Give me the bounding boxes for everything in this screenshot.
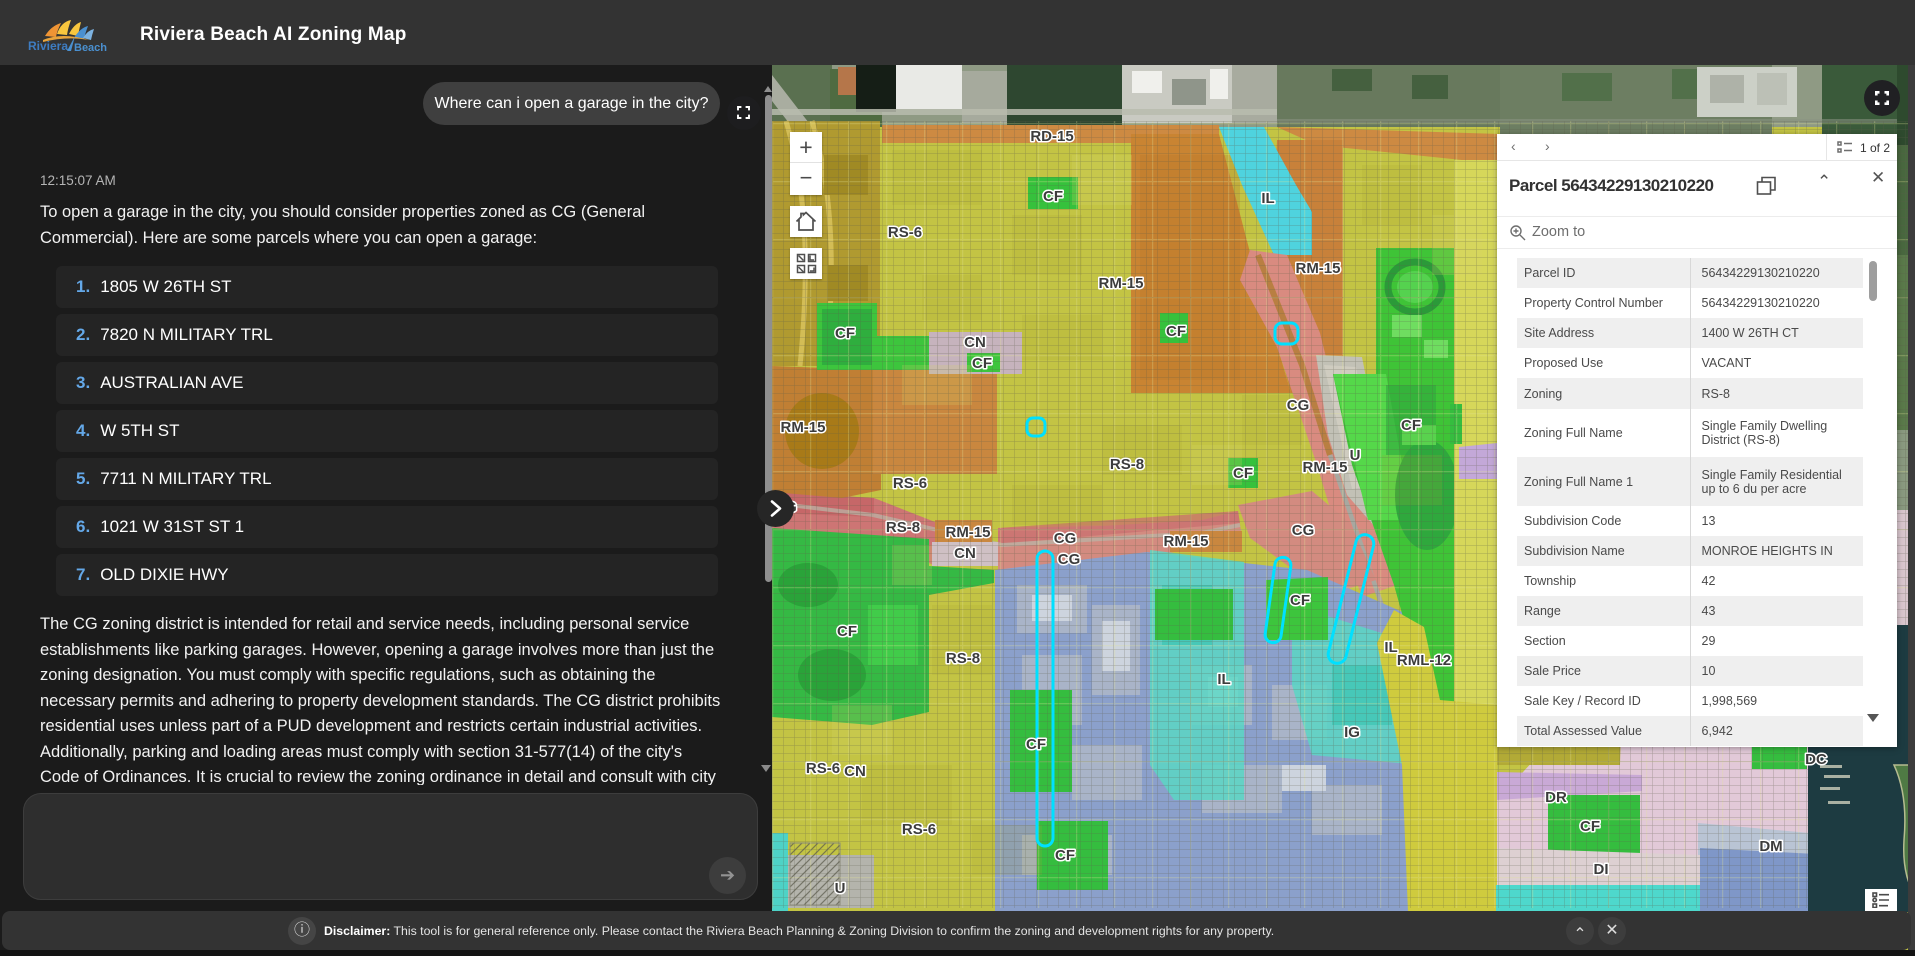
- svg-text:RS-6: RS-6: [902, 821, 936, 838]
- svg-text:CN: CN: [844, 763, 866, 780]
- svg-text:CF: CF: [1580, 818, 1600, 835]
- svg-text:RM-15: RM-15: [1098, 275, 1143, 292]
- svg-text:CF: CF: [1290, 592, 1310, 609]
- svg-text:RM-15: RM-15: [1302, 459, 1347, 476]
- svg-text:CF: CF: [972, 355, 992, 372]
- svg-text:CG: CG: [1054, 530, 1077, 547]
- svg-text:DR: DR: [1545, 789, 1567, 806]
- svg-text:RS-8: RS-8: [1110, 456, 1144, 473]
- svg-text:U: U: [835, 880, 846, 897]
- svg-text:RM-15: RM-15: [1295, 260, 1340, 277]
- svg-text:CN: CN: [954, 545, 976, 562]
- svg-text:DM: DM: [1759, 838, 1782, 855]
- svg-text:RM-15: RM-15: [945, 524, 990, 541]
- svg-text:RS-8: RS-8: [886, 519, 920, 536]
- svg-text:CF: CF: [835, 325, 855, 342]
- svg-text:CG: CG: [1058, 551, 1081, 568]
- svg-text:RS-6: RS-6: [806, 760, 840, 777]
- svg-text:RS-6: RS-6: [893, 475, 927, 492]
- svg-text:RD-15: RD-15: [1030, 128, 1073, 145]
- svg-text:DC: DC: [1805, 751, 1827, 768]
- svg-text:CF: CF: [1233, 465, 1253, 482]
- svg-text:RML-12: RML-12: [1397, 652, 1451, 669]
- svg-text:CG: CG: [1287, 397, 1310, 414]
- svg-text:RS-6: RS-6: [888, 224, 922, 241]
- svg-text:CG: CG: [1292, 522, 1315, 539]
- svg-text:IL: IL: [1384, 639, 1397, 656]
- svg-text:CF: CF: [837, 623, 857, 640]
- svg-text:IG: IG: [1344, 724, 1360, 741]
- svg-text:CF: CF: [1166, 323, 1186, 340]
- svg-text:IL: IL: [1217, 671, 1230, 688]
- svg-text:DI: DI: [1594, 861, 1609, 878]
- svg-text:IL: IL: [1261, 190, 1274, 207]
- svg-text:CF: CF: [1026, 736, 1046, 753]
- svg-text:Beach: Beach: [74, 42, 107, 52]
- svg-text:RM-15: RM-15: [780, 419, 825, 436]
- svg-text:RS-8: RS-8: [946, 650, 980, 667]
- svg-text:CF: CF: [1055, 847, 1075, 864]
- svg-text:CF: CF: [1043, 188, 1063, 205]
- svg-text:Riviera: Riviera: [28, 39, 68, 52]
- svg-text:U: U: [1350, 447, 1361, 464]
- svg-text:RM-15: RM-15: [1163, 533, 1208, 550]
- svg-text:CN: CN: [964, 334, 986, 351]
- svg-text:CF: CF: [1401, 417, 1421, 434]
